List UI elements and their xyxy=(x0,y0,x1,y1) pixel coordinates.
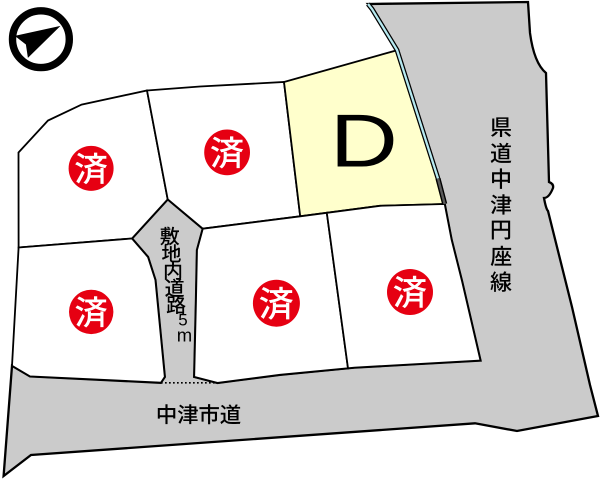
svg-text:D: D xyxy=(330,99,398,183)
svg-text:m: m xyxy=(177,325,192,346)
